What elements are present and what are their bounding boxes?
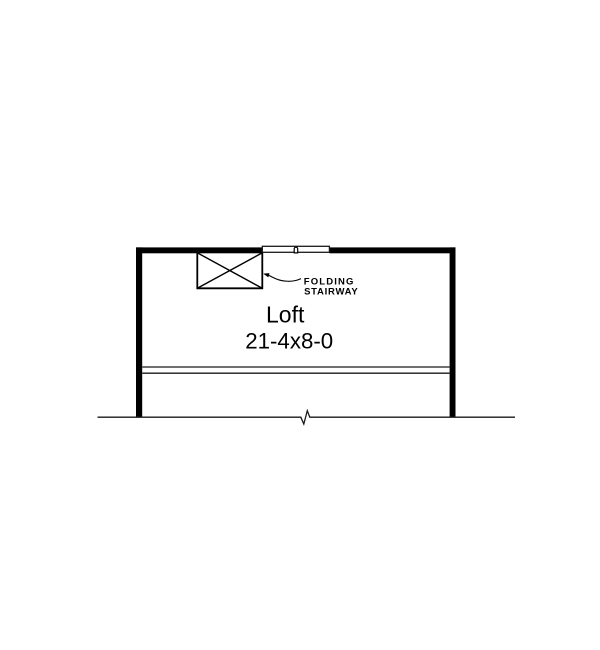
svg-text:STAIRWAY: STAIRWAY [304,286,358,297]
svg-text:21-4x8-0: 21-4x8-0 [245,328,333,353]
svg-text:Loft: Loft [266,302,305,328]
